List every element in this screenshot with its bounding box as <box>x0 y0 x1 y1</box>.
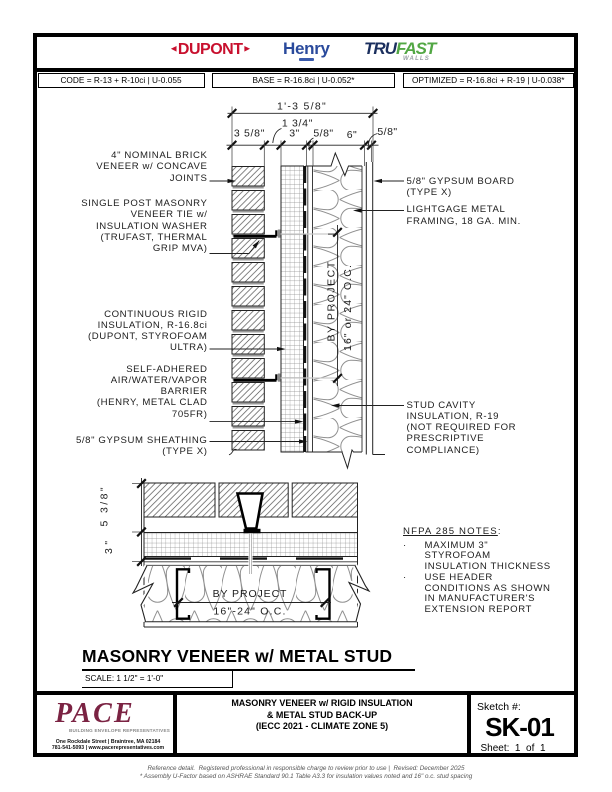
svg-text:3": 3" <box>289 128 300 140</box>
svg-text:5 3/8": 5 3/8" <box>99 485 111 526</box>
svg-text:3": 3" <box>103 537 115 554</box>
svg-text:6": 6" <box>347 129 358 141</box>
svg-text:BY PROJECT: BY PROJECT <box>213 588 288 600</box>
svg-text:16"-24" O.C.: 16"-24" O.C. <box>213 606 286 618</box>
svg-text:16" or 24" O.C.: 16" or 24" O.C. <box>342 264 354 351</box>
svg-text:5/8": 5/8" <box>313 128 333 140</box>
svg-text:5/8": 5/8" <box>377 126 397 138</box>
svg-text:BY PROJECT: BY PROJECT <box>326 260 338 341</box>
svg-text:1'-3 5/8": 1'-3 5/8" <box>277 101 327 113</box>
svg-text:3 5/8": 3 5/8" <box>234 128 265 140</box>
